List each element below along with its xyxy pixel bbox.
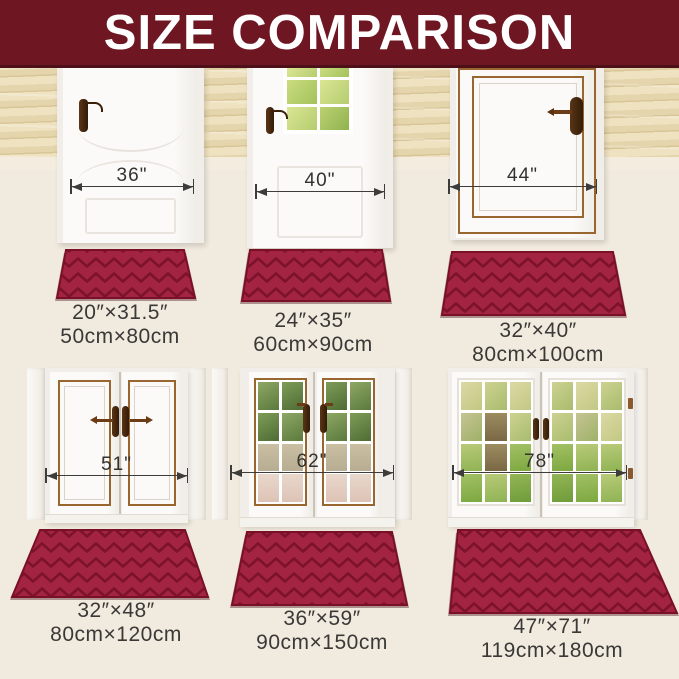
doormat	[442, 252, 625, 315]
width-measurement-40: 40"	[255, 182, 385, 202]
window-pane	[601, 382, 622, 410]
doormat-shadow	[440, 255, 627, 318]
door-handle-icon	[533, 418, 539, 440]
handle-flourish-icon	[97, 419, 113, 422]
lever-tip-icon	[547, 108, 554, 116]
door-meeting-gap	[540, 372, 542, 522]
wall-pilaster	[27, 368, 45, 520]
window-pane	[326, 413, 347, 441]
door-width-label: 40"	[305, 170, 336, 192]
door-width-label: 36"	[117, 165, 148, 187]
window-pane	[287, 68, 317, 77]
window-pane	[350, 413, 371, 441]
mat-size-label: 47″×71″ 119cm×180cm	[481, 615, 623, 662]
width-measurement-44: 44"	[448, 177, 597, 197]
window-pane	[485, 382, 506, 410]
window-pane	[510, 413, 531, 441]
doormat-shadow	[240, 253, 392, 304]
window-pane	[282, 413, 303, 441]
mat-size-inches: 24″×35″	[253, 309, 372, 333]
window-pane	[576, 382, 597, 410]
door-threshold	[45, 514, 188, 523]
window-pane	[461, 413, 482, 441]
wall-pilaster	[632, 368, 648, 520]
window-pane	[320, 80, 350, 104]
mat-size-cm: 90cm×150cm	[256, 631, 388, 655]
door-handle-icon	[320, 404, 327, 433]
doormat	[242, 250, 390, 301]
door-glass-grid	[322, 378, 375, 506]
window-pane	[510, 382, 531, 410]
mat-size-label: 36″×59″ 90cm×150cm	[256, 607, 388, 654]
mat-size-cm: 80cm×120cm	[50, 623, 182, 647]
door-molding	[77, 120, 184, 152]
door-width-label: 44"	[507, 165, 538, 187]
width-measurement-51: 51"	[45, 466, 188, 486]
mat-size-inches: 20″×31.5″	[60, 301, 179, 325]
doormat-shadow	[448, 533, 679, 616]
mat-size-cm: 80cm×100cm	[472, 343, 604, 367]
mat-size-label: 32″×40″ 80cm×100cm	[472, 319, 604, 366]
window-pane	[320, 107, 350, 131]
doormat	[57, 250, 195, 298]
single-door-36	[63, 68, 198, 243]
door-width-label: 62"	[297, 451, 328, 473]
wall-pilaster	[212, 368, 228, 520]
window-pane	[485, 413, 506, 441]
wall-pilaster	[188, 368, 206, 520]
doormat	[232, 532, 407, 605]
door-glass-grid	[548, 378, 626, 506]
door-glass-grid	[457, 378, 535, 506]
door-window	[283, 68, 353, 134]
window-pane	[552, 382, 573, 410]
door-handle-icon	[570, 97, 583, 135]
door-handle-icon	[122, 406, 129, 437]
title-banner: SIZE COMPARISON	[0, 0, 679, 68]
door-hinge-icon	[628, 398, 633, 409]
page-title: SIZE COMPARISON	[104, 5, 575, 61]
doormat-shadow	[10, 533, 210, 600]
size-comparison-infographic: SIZE COMPARISON 36" 40"	[0, 0, 679, 679]
door-hinge-icon	[628, 468, 633, 479]
mat-size-label: 24″×35″ 60cm×90cm	[253, 309, 372, 356]
door-panel-outline	[58, 380, 111, 506]
window-pane	[287, 107, 317, 131]
door-width-label: 78"	[524, 451, 555, 473]
door-molding	[85, 198, 176, 234]
door-handle-icon	[112, 406, 119, 437]
handle-hook-icon	[297, 403, 305, 406]
door-handle-lever-icon	[553, 110, 572, 114]
window-pane	[287, 80, 317, 104]
mat-size-inches: 47″×71″	[481, 615, 623, 639]
width-measurement-62: 62"	[230, 463, 394, 483]
handle-flourish-icon	[130, 419, 146, 422]
window-pane	[258, 413, 279, 441]
window-pane	[258, 382, 279, 410]
window-pane	[601, 413, 622, 441]
door-meeting-gap	[119, 372, 121, 516]
doormat	[12, 530, 208, 597]
doormat-shadow	[55, 253, 197, 301]
door-handle-lever-icon	[87, 102, 103, 112]
mat-size-label: 32″×48″ 80cm×120cm	[50, 599, 182, 646]
door-threshold	[448, 517, 634, 527]
width-measurement-78: 78"	[452, 463, 627, 483]
mat-size-cm: 50cm×80cm	[60, 325, 179, 349]
handle-hook-icon	[325, 403, 333, 406]
width-measurement-36: 36"	[70, 177, 194, 197]
door-meeting-gap	[313, 372, 315, 522]
window-pane	[350, 382, 371, 410]
wall-pilaster	[396, 368, 412, 520]
mat-size-inches: 32″×48″	[50, 599, 182, 623]
mat-size-inches: 32″×40″	[472, 319, 604, 343]
door-handle-icon	[543, 418, 549, 440]
door-width-label: 51"	[101, 454, 132, 476]
window-pane	[576, 413, 597, 441]
door-handle-icon	[303, 404, 310, 433]
mat-size-inches: 36″×59″	[256, 607, 388, 631]
door-threshold	[240, 517, 395, 527]
flourish-tip-icon	[146, 416, 153, 424]
door-glass-grid	[254, 378, 307, 506]
window-pane	[461, 382, 482, 410]
window-pane	[320, 68, 350, 77]
flourish-tip-icon	[90, 416, 97, 424]
doormat-shadow	[230, 535, 409, 608]
mat-size-cm: 119cm×180cm	[481, 639, 623, 663]
window-pane	[552, 413, 573, 441]
mat-size-cm: 60cm×90cm	[253, 333, 372, 357]
mat-size-label: 20″×31.5″ 50cm×80cm	[60, 301, 179, 348]
door-panel-outline	[128, 380, 176, 506]
doormat	[450, 530, 677, 613]
